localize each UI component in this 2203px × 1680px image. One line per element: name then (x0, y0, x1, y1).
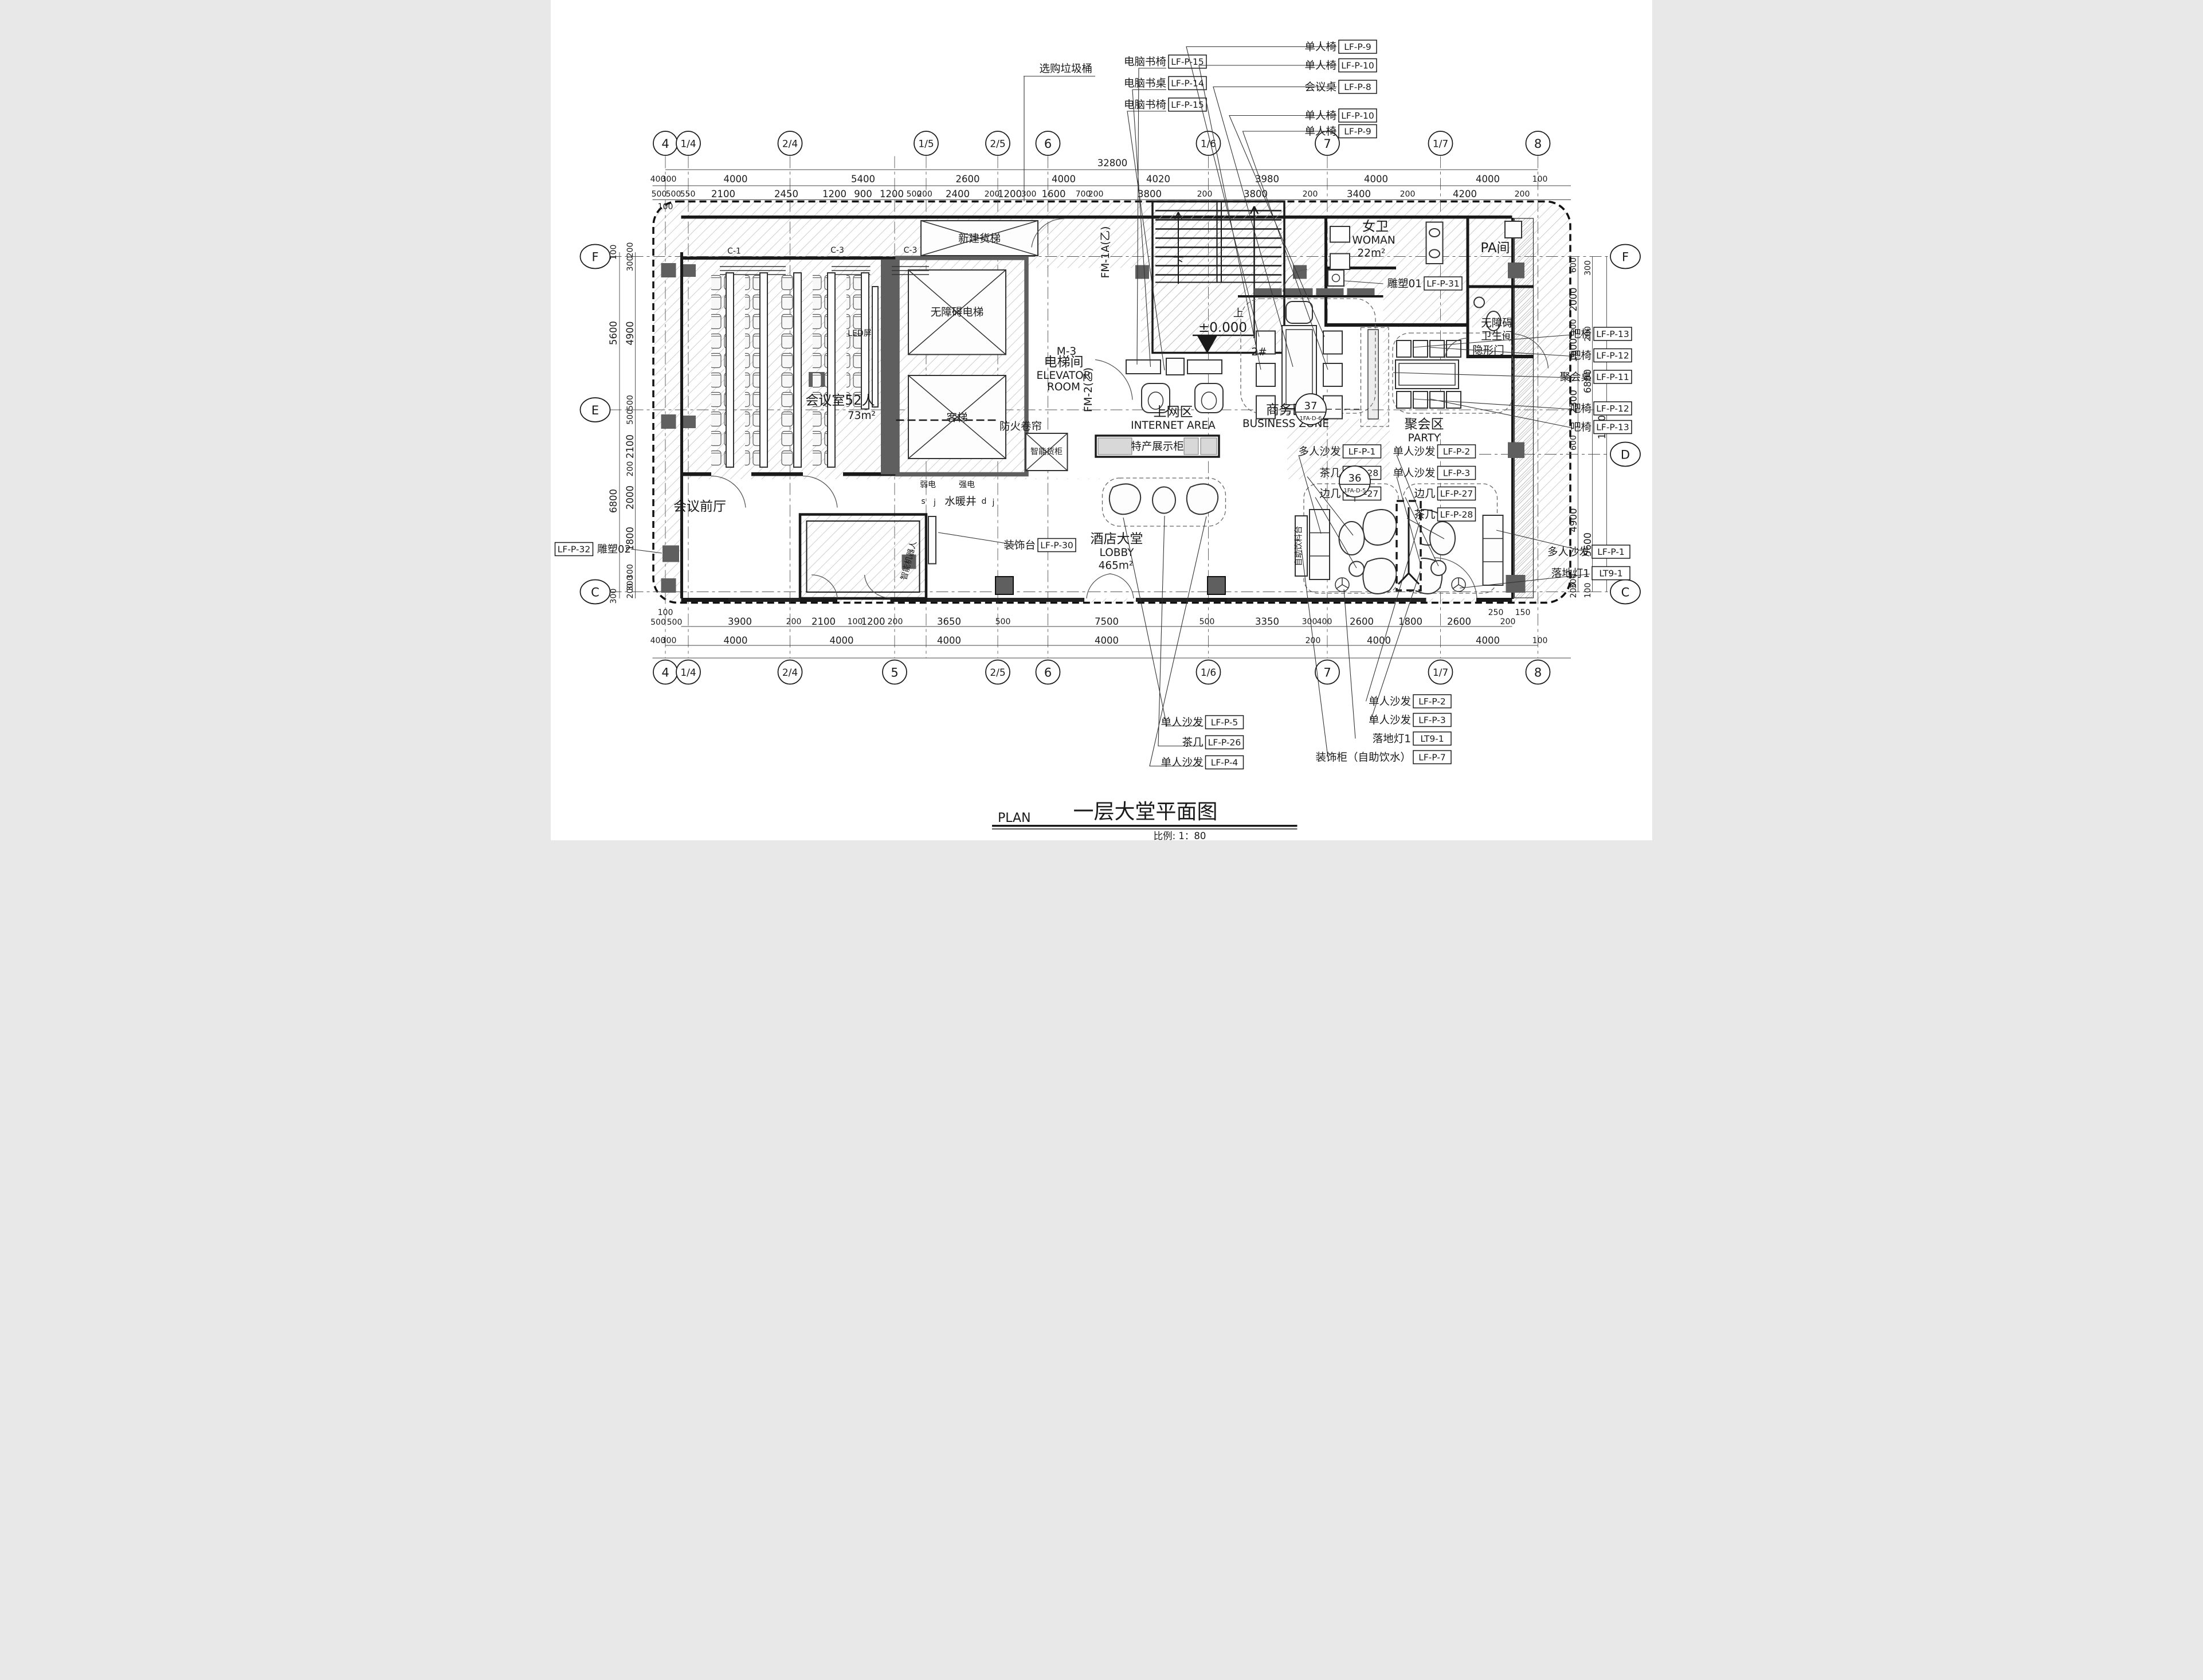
label-led: LED屏 (848, 329, 871, 338)
finish-c3b: C-3 (904, 246, 918, 255)
dim-bot-det-4: 200 (786, 617, 802, 626)
dim-top-det-2: 550 (680, 190, 696, 199)
dim-top-det-3: 2100 (711, 189, 735, 199)
lobby-chair-2 (1153, 487, 1175, 514)
room-woman-area: 22m² (1358, 248, 1386, 260)
dim-top-det-10: 2400 (946, 189, 970, 199)
sofa-right-3-label: 茶几 (1414, 509, 1435, 521)
label-weak-power: 弱电 (920, 480, 936, 489)
bubble-top-0: 4 (661, 137, 669, 151)
dim-bot-det-3: 3900 (728, 616, 752, 627)
top-center-0-label: 电脑书椅 (1124, 56, 1166, 68)
room-pa: PA间 (1480, 241, 1510, 256)
dim-bot-det-8: 200 (888, 617, 903, 626)
dim-top-grid-3: 5400 (851, 174, 875, 185)
dim-left-in-1: 300 (626, 256, 635, 272)
bubble-left-C: C (591, 586, 599, 600)
sofa-right (1483, 515, 1503, 585)
dim-top-grid-9: 4000 (1476, 174, 1500, 185)
right-top-4-code: LF-P-13 (1596, 422, 1629, 433)
dim-left-in-4: 500 (626, 409, 635, 425)
bubble-top-8: 1/7 (1433, 139, 1448, 150)
dim-bot-det-7: 1200 (861, 616, 885, 627)
bottom-right-3-code: LF-P-7 (1418, 753, 1446, 763)
right-bottom-1-code: LT9-1 (1599, 569, 1622, 579)
dim-bot-det-6: 100 (848, 617, 863, 626)
label-fire-shutter: 防火卷帘 (999, 421, 1042, 433)
dim-top-det-16: 200 (1088, 190, 1104, 199)
room-woman-zh: 女卫 (1362, 220, 1389, 234)
chair-column-5 (846, 273, 861, 409)
dim-bot-det-11: 7500 (1095, 616, 1119, 627)
dim-top-det-24: 200 (1515, 190, 1530, 199)
sofa-right-3-code: LF-P-28 (1440, 510, 1473, 520)
shaft-letter-d: d (982, 497, 987, 506)
lobby-chair-1 (1110, 484, 1140, 514)
chair-column-4 (813, 273, 827, 467)
room-lobby-area: 465m² (1099, 560, 1134, 572)
label-drink-counter: 自助饮料台 (1295, 526, 1304, 566)
led-screen (872, 287, 878, 407)
top-right-1-label: 单人椅 (1304, 60, 1336, 72)
dim-top-det-12: 1200 (998, 189, 1022, 199)
dim-top-grid-4: 2600 (956, 174, 980, 185)
stair-up: 上 (1233, 308, 1244, 320)
dim-bot-det-15: 400 (1317, 617, 1332, 626)
bubble-bot-6: 1/6 (1201, 667, 1216, 679)
top-center-1-code: LF-P-14 (1171, 79, 1204, 89)
bottom-left-1-code: LF-P-26 (1208, 738, 1241, 748)
bottom-left-0-code: LF-P-5 (1211, 718, 1238, 728)
dim-top-grid-6: 4020 (1146, 174, 1170, 185)
circle36-num: 36 (1349, 472, 1362, 484)
dim-r2-0: 300 (1583, 260, 1593, 276)
pa-sink (1505, 221, 1522, 238)
chair-column-2 (745, 273, 759, 467)
top-right-0-code: LF-P-9 (1344, 42, 1371, 52)
bubble-bot-3: 5 (891, 666, 898, 680)
bar-counter (1368, 330, 1378, 419)
label-display-cabinet: 特产展示柜 (1131, 441, 1184, 453)
dim-r1-5: 600 (1569, 435, 1578, 451)
sculpture01-code: LF-P-31 (1426, 279, 1459, 289)
basin-1 (1429, 229, 1440, 237)
label-plumbing: 水暖井 (944, 496, 977, 508)
room-internet-zh: 上网区 (1154, 405, 1193, 420)
dim-left-out-1: 5600 (608, 321, 619, 345)
callout-left-edge: LF-P-32 雕塑02 (555, 543, 663, 556)
room-accessible-1: 无障碍 (1481, 318, 1513, 330)
sofa-right-2-label: 边几 (1414, 488, 1435, 500)
dim-top-grid-5: 4000 (1052, 174, 1076, 185)
dim-left-in-5: 2100 (625, 434, 636, 459)
bubble-bot-8: 1/7 (1433, 667, 1448, 679)
pc-desk-2 (1187, 360, 1222, 374)
dim-bot-det-10: 500 (995, 617, 1011, 626)
side-table-oval-right (1430, 522, 1455, 555)
tub-chair-2 (1195, 383, 1223, 413)
chair-column-1 (711, 273, 726, 467)
right-top-1-code: LF-P-12 (1596, 351, 1629, 361)
bubble-bot-0: 4 (661, 666, 669, 680)
bubble-right-C: C (1621, 586, 1630, 600)
dim-bot-grid-3: 4000 (830, 635, 854, 646)
chair-column-3 (779, 273, 793, 467)
room-party-en: PARTY (1408, 432, 1441, 444)
conference-wall-right (881, 260, 896, 475)
accessible-wc-basin (1474, 297, 1484, 308)
label-accessible-lift: 无障碍电梯 (931, 307, 984, 319)
sofa-right-0-label: 单人沙发 (1393, 446, 1435, 458)
dim-bot-det-14: 300 (1302, 617, 1318, 626)
title-block: PLAN 一层大堂平面图 比例: 1：80 (992, 800, 1298, 840)
right-top-4-label: 吧椅 (1570, 422, 1592, 434)
bottom-right-2-label: 落地灯1 (1373, 733, 1411, 745)
door-fm2: FM-2(乙) (1083, 367, 1095, 412)
label-freight-lift: 新建货梯 (958, 233, 1001, 245)
room-lobby-zh: 酒店大堂 (1091, 532, 1143, 547)
dim-bot-det-0: 100 (658, 608, 673, 617)
top-right-4-code: LF-P-9 (1344, 127, 1371, 137)
internet-side-table (1166, 358, 1184, 375)
title-plan-label: PLAN (998, 811, 1031, 825)
room-conference-front: 会议前厅 (673, 499, 726, 514)
right-top-3-label: 吧椅 (1570, 403, 1592, 415)
bottom-right-3-label: 装饰柜（自助饮水） (1315, 752, 1411, 764)
dim-bot-grid-5: 4000 (1095, 635, 1119, 646)
bubble-top-1: 1/4 (680, 139, 696, 150)
finish-c1: C-1 (727, 247, 741, 256)
top-right-4-label: 单人椅 (1304, 126, 1336, 138)
sofa-right-1-code: LF-P-3 (1443, 468, 1471, 479)
right-top-3-code: LF-P-12 (1596, 404, 1629, 414)
dim-left-in-0: 200 (626, 242, 635, 258)
dim-bot-grid-9: 100 (1532, 636, 1548, 645)
dim-r1-8: 200 (1569, 583, 1578, 598)
dim-left-in-11: 200 (626, 584, 635, 599)
left-edge-code: LF-P-32 (558, 545, 590, 555)
dim-bot-grid-8: 4000 (1476, 635, 1500, 646)
wc-stall-2 (1330, 254, 1350, 270)
door-fm1a: FM-1A(乙) (1100, 226, 1112, 279)
bottom-left-2-label: 单人沙发 (1161, 757, 1203, 769)
drawing-title: 一层大堂平面图 (1073, 800, 1217, 824)
circle36-ref: 1FA-D-5 (1343, 488, 1366, 494)
dim-r1-0: 600 (1569, 257, 1578, 273)
business-head-chair (1286, 301, 1312, 323)
dim-bot-det-2: 500 (667, 618, 683, 627)
dim-top-det-1: 500 (666, 190, 681, 199)
left-edge-label: 雕塑02 (597, 543, 631, 555)
room-woman-en: WOMAN (1352, 234, 1395, 246)
dim-bot-det-21: 150 (1515, 608, 1531, 617)
circle37-num: 37 (1304, 400, 1318, 412)
sofa-right-2-code: LF-P-27 (1440, 489, 1473, 499)
finish-c3a: C-3 (830, 246, 844, 255)
drawing-scale: 比例: 1：80 (1154, 831, 1206, 840)
top-right-0-label: 单人椅 (1304, 41, 1336, 53)
bubble-top-5: 6 (1044, 137, 1052, 151)
bubble-top-7: 7 (1323, 137, 1331, 151)
top-center-2-code: LF-P-15 (1171, 100, 1204, 110)
bubble-right-D: D (1621, 448, 1630, 462)
dim-top-det-22: 200 (1400, 190, 1416, 199)
bubble-top-4: 2/5 (990, 139, 1005, 150)
label-smart-locker: 智能货柜 (1030, 447, 1063, 457)
dim-bot-det-12: 500 (1200, 617, 1215, 626)
bottom-right-1-label: 单人沙发 (1369, 715, 1411, 727)
dim-top-det-5: 1200 (822, 189, 846, 199)
bottom-left-0-label: 单人沙发 (1161, 717, 1203, 729)
top-right-3-label: 单人椅 (1304, 110, 1336, 122)
room-conference: 会议室52人 (805, 393, 875, 408)
dim-top-det-20: 200 (1303, 190, 1318, 199)
dim-bot-det-18: 2600 (1447, 616, 1471, 627)
dim-top-det-17: 3800 (1138, 189, 1162, 199)
lobby-column-2 (1208, 577, 1225, 594)
right-bottom-0-label: 多人沙发 (1547, 546, 1590, 558)
desk-column-1 (726, 273, 734, 467)
dim-bot-grid-4: 4000 (937, 635, 961, 646)
pc-desk-1 (1126, 360, 1161, 374)
sculpture-02 (663, 546, 679, 562)
right-bottom-0-code: LF-P-1 (1597, 547, 1625, 557)
bubble-bot-1: 1/4 (680, 667, 696, 679)
dim-left-in-6: 200 (626, 461, 635, 477)
right-top-2-label: 聚会桌 (1559, 371, 1592, 383)
dim-left-out-3: 300 (609, 589, 618, 604)
sofa-left-0-label: 多人沙发 (1298, 446, 1340, 458)
stair-level: ±0.000 (1198, 320, 1247, 335)
sofa-left-1-label: 茶几 (1319, 468, 1340, 480)
bottom-left-2-code: LF-P-4 (1211, 758, 1238, 768)
dim-bot-det-13: 3350 (1255, 616, 1279, 627)
wall-left (680, 252, 683, 598)
stair-down: 下 (1173, 256, 1184, 268)
top-right-2-code: LF-P-8 (1344, 82, 1371, 92)
bubble-bot-5: 6 (1044, 666, 1052, 680)
armchair-2 (1363, 558, 1396, 594)
dim-bot-det-9: 3650 (937, 616, 961, 627)
right-top-1-label: 吧椅 (1570, 350, 1592, 362)
bubble-left-E: E (591, 404, 599, 417)
room-party-zh: 聚会区 (1405, 417, 1444, 432)
bubble-bot-7: 7 (1323, 666, 1331, 680)
bottom-right-2-code: LT9-1 (1420, 734, 1444, 744)
desk-column-3 (794, 273, 801, 467)
bubble-bot-2: 2/4 (782, 667, 798, 679)
dim-top-det-18: 200 (1197, 190, 1213, 199)
dim-bot-grid-2: 4000 (724, 635, 748, 646)
desk-column-2 (760, 273, 767, 467)
top-center-2-label: 电脑书椅 (1124, 99, 1166, 111)
door-m3: M-3 (1057, 346, 1076, 358)
dim-r1-1: 2000 (1568, 288, 1579, 312)
sofa-left-0-code: LF-P-1 (1349, 447, 1376, 457)
bubble-left-F: F (591, 250, 598, 264)
bubble-top-3: 1/5 (918, 139, 934, 150)
business-wall-top (1238, 295, 1383, 297)
dim-top-grid-10: 100 (1532, 175, 1548, 184)
circle37-ref: 1FA-D-6 (1299, 416, 1322, 422)
right-top-0-code: LF-P-13 (1596, 329, 1629, 339)
dim-top-grid-1: 300 (661, 175, 677, 184)
top-right-1-code: LF-P-10 (1341, 61, 1374, 71)
shaft-letter-j2: j (992, 498, 995, 507)
title-underline-1 (992, 825, 1298, 827)
shaft-letter-j: j (933, 498, 936, 507)
wc-stall-1 (1330, 226, 1350, 242)
top-center-1-label: 电脑书桌 (1124, 78, 1166, 90)
bubble-right-F: F (1622, 250, 1629, 264)
dim-left-out-0: 100 (609, 245, 618, 260)
dim-top-det-7: 1200 (880, 189, 904, 199)
dim-top-det-0: 500 (652, 190, 667, 199)
dim-top-grid-8: 4000 (1364, 174, 1388, 185)
dim-bot-grid-7: 4000 (1367, 635, 1391, 646)
dim-left-in-7: 2000 (625, 485, 636, 510)
right-bottom-1-label: 落地灯1 (1551, 568, 1590, 580)
sofa-right-0-code: LF-P-2 (1443, 447, 1471, 457)
dim-bot-det-5: 2100 (812, 616, 836, 627)
sculpture-01 (1328, 270, 1344, 286)
side-table-oval-left (1339, 522, 1365, 555)
dim-top-det-23: 4200 (1453, 189, 1477, 199)
armchair-1 (1363, 510, 1396, 545)
bubble-top-2: 2/4 (782, 139, 798, 150)
lobby-chair-3 (1187, 484, 1218, 514)
callout-trash: 选购垃圾桶 (1040, 63, 1093, 75)
bottom-right-0-label: 单人沙发 (1369, 696, 1411, 708)
dim-top-grid-2: 4000 (724, 174, 748, 185)
room-elevator-en2: ROOM (1047, 381, 1080, 393)
dim-top-small: 100 (658, 202, 673, 212)
dim-bot-grid-1: 300 (661, 636, 677, 645)
dim-top-det-6: 900 (854, 189, 872, 199)
desk-column-5 (861, 273, 869, 409)
room-conference-area: 73m² (848, 410, 876, 422)
side-table-small-left (1349, 562, 1364, 577)
shaft-letter-s: s (921, 497, 925, 506)
floorplan-canvas: 32800 400 300 4000 5400 2600 4000 4020 3… (551, 0, 1652, 840)
bubble-bot-9: 8 (1534, 666, 1542, 680)
side-table-small-right (1431, 561, 1446, 575)
dim-left-in-3: 500 (626, 395, 635, 410)
dim-bot-det-19: 250 (1488, 608, 1504, 617)
label-strong-power: 强电 (959, 480, 975, 489)
sofa-left (1310, 510, 1330, 579)
dim-bot-det-16: 2600 (1350, 616, 1374, 627)
sculpture01-label: 雕塑01 (1387, 278, 1422, 290)
console-code: LF-P-30 (1040, 541, 1073, 551)
bottom-right-1-code: LF-P-3 (1418, 715, 1446, 726)
dim-r2-4: 100 (1583, 583, 1593, 598)
dim-bot-det-1: 500 (650, 618, 666, 627)
lobby-column-1 (995, 577, 1013, 594)
sofa-right-1-label: 单人沙发 (1393, 468, 1435, 480)
basin-2 (1429, 250, 1440, 258)
room-internet-en: INTERNET AREA (1131, 420, 1216, 432)
dim-top-det-21: 3400 (1347, 189, 1371, 199)
room-lobby-en: LOBBY (1100, 547, 1135, 559)
dim-left-in-2: 4900 (625, 322, 636, 346)
dim-top-det-9: 200 (917, 190, 932, 199)
label-passenger-lift: 客梯 (946, 412, 967, 424)
dim-top-det-14: 1600 (1042, 189, 1066, 199)
bottom-right-0-code: LF-P-2 (1418, 696, 1446, 707)
dim-top-det-13: 300 (1021, 190, 1037, 199)
drawing-sheet: 32800 400 300 4000 5400 2600 4000 4020 3… (551, 0, 1652, 840)
bottom-left-1-label: 茶几 (1182, 737, 1203, 749)
dim-bot-det-20: 200 (1500, 617, 1516, 626)
sofa-left-2-label: 边几 (1319, 488, 1340, 500)
top-right-2-label: 会议桌 (1304, 81, 1336, 93)
right-top-0-label: 吧椅 (1570, 328, 1592, 340)
console-label: 装饰台 (1003, 540, 1036, 552)
wall-top (681, 216, 1512, 219)
title-underline-2 (992, 829, 1298, 830)
stair-num: 2# (1251, 346, 1267, 358)
bubble-top-9: 8 (1534, 137, 1542, 151)
dim-top-overall: 32800 (1097, 158, 1128, 169)
dim-r1-6: 4900 (1568, 508, 1579, 532)
dim-top-det-11: 200 (985, 190, 1000, 199)
top-right-3-code: LF-P-10 (1341, 111, 1374, 121)
right-top-2-code: LF-P-11 (1596, 372, 1629, 382)
dim-top-det-4: 2450 (774, 189, 798, 199)
console-table (928, 516, 936, 564)
bubble-bot-4: 2/5 (990, 667, 1005, 679)
dim-left-out-2: 6800 (608, 489, 619, 513)
desk-column-4 (828, 273, 835, 467)
